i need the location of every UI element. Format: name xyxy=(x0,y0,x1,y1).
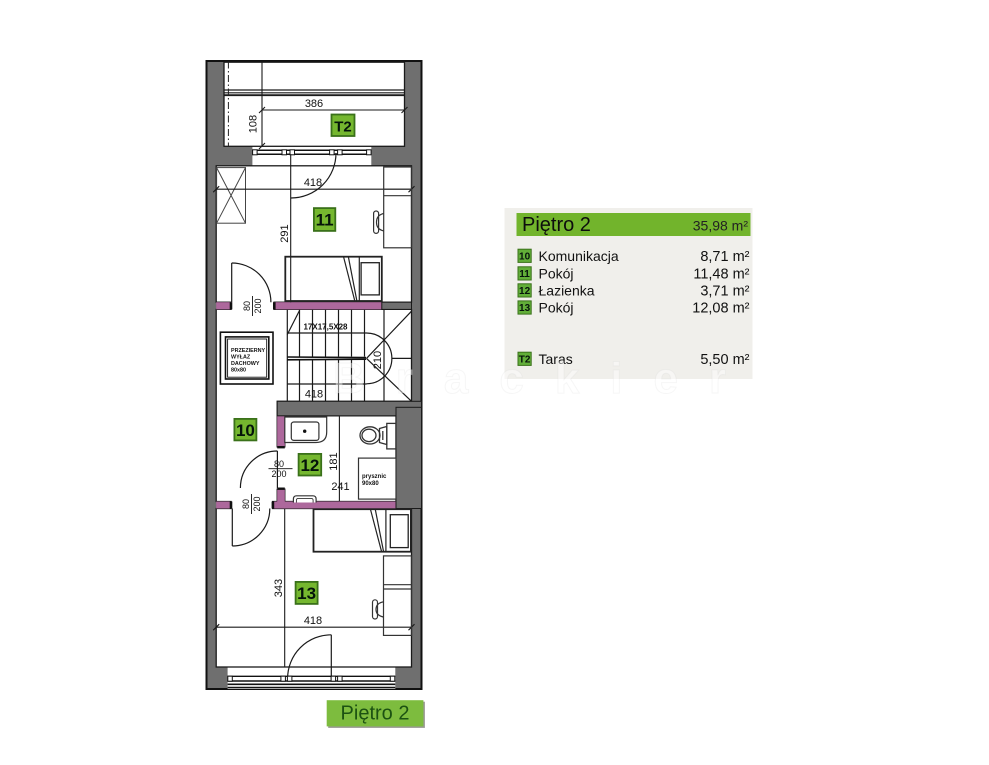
svg-text:11: 11 xyxy=(519,269,530,280)
svg-text:241: 241 xyxy=(331,481,349,493)
svg-text:13: 13 xyxy=(297,584,316,603)
svg-text:Pokój: Pokój xyxy=(539,266,574,282)
svg-text:80x80: 80x80 xyxy=(231,368,246,374)
svg-text:prysznic: prysznic xyxy=(362,474,387,480)
svg-text:Łazienka: Łazienka xyxy=(539,283,595,299)
svg-text:386: 386 xyxy=(305,98,323,110)
svg-text:10: 10 xyxy=(236,421,255,440)
svg-text:12: 12 xyxy=(300,456,319,475)
svg-text:343: 343 xyxy=(273,579,285,597)
svg-text:11,48 m²: 11,48 m² xyxy=(693,267,749,283)
svg-text:Pokój: Pokój xyxy=(539,300,574,316)
svg-text:181: 181 xyxy=(328,452,340,470)
svg-text:PRZEZIERNY: PRZEZIERNY xyxy=(231,348,266,354)
svg-text:80: 80 xyxy=(274,459,284,469)
svg-text:291: 291 xyxy=(279,224,291,242)
svg-text:Brackier: Brackier xyxy=(333,354,757,403)
svg-text:80: 80 xyxy=(241,499,251,509)
svg-text:Komunikacja: Komunikacja xyxy=(539,248,619,264)
svg-text:12,08 m²: 12,08 m² xyxy=(692,301,749,317)
svg-text:90x80: 90x80 xyxy=(362,481,379,487)
svg-text:10: 10 xyxy=(519,251,531,262)
svg-text:108: 108 xyxy=(248,115,260,133)
svg-text:17X17,5X28: 17X17,5X28 xyxy=(303,323,348,332)
svg-text:35,98 m²: 35,98 m² xyxy=(693,218,749,234)
svg-text:418: 418 xyxy=(304,615,322,627)
svg-text:11: 11 xyxy=(316,211,334,230)
svg-text:200: 200 xyxy=(253,298,263,313)
svg-text:200: 200 xyxy=(271,469,286,479)
svg-text:8,71 m²: 8,71 m² xyxy=(700,249,749,265)
svg-text:418: 418 xyxy=(304,177,322,189)
svg-text:3,71 m²: 3,71 m² xyxy=(700,284,749,300)
svg-text:T2: T2 xyxy=(334,119,352,136)
svg-text:80: 80 xyxy=(242,301,252,311)
svg-text:418: 418 xyxy=(305,389,323,401)
svg-text:WYŁAZ: WYŁAZ xyxy=(231,355,251,361)
svg-text:Piętro 2: Piętro 2 xyxy=(522,214,591,236)
svg-text:Piętro 2: Piętro 2 xyxy=(341,703,410,725)
svg-text:200: 200 xyxy=(252,496,262,511)
svg-text:DACHOWY: DACHOWY xyxy=(231,361,260,367)
svg-text:12: 12 xyxy=(519,286,531,297)
svg-text:13: 13 xyxy=(519,303,531,314)
